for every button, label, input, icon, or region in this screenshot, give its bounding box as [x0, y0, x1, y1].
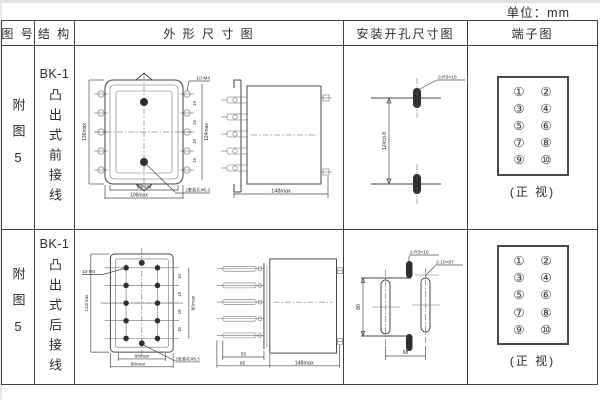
dim-124max: 124max: [204, 122, 210, 140]
dim-148max: 148max: [294, 360, 313, 366]
row2-install-drawing: 80 68 2-R3×10 2-10×87: [345, 242, 467, 372]
row2-outline-side-view: 55 65 148max: [211, 242, 343, 372]
dim-pitch-4: 19: [177, 327, 182, 332]
side-terminals: [221, 97, 247, 171]
hole-label: 2安装孔Φ5.3: [175, 355, 200, 362]
terminal-6: ⑥: [540, 287, 551, 302]
dim-136max: 136max: [82, 122, 88, 140]
dim-pitch-1: 19: [192, 100, 197, 105]
terminal-caption: (正 视): [510, 352, 555, 369]
row2-outline-cell: 112max 10-M4 19 19 19 19 80max 68max 88m…: [75, 230, 344, 384]
dim-80max: 80max: [191, 295, 197, 310]
terminal-1: ①: [513, 253, 524, 268]
mounting-studs: [321, 95, 332, 175]
row2-outline-front-view: 112max 10-M4 19 19 19 19 80max 68max 88m…: [81, 243, 201, 371]
terminal-5: ⑤: [513, 287, 524, 302]
header-terminal: 端子图: [468, 21, 597, 46]
header-outline: 外 形 尺 寸 图: [75, 21, 344, 46]
structure-text: 凸出式后接线: [48, 258, 61, 378]
terminal-6: ⑥: [540, 118, 551, 133]
terminal-8: ⑧: [540, 135, 551, 150]
slot-long-label: 2-10×87: [436, 260, 454, 266]
dim-124-0.8: 124±0.8: [382, 131, 388, 149]
figure-no-text: 附图5: [12, 98, 25, 178]
terminal-7: ⑦: [513, 135, 524, 150]
row1-outline-front-view: 136max 124max 19 19 19 19 10-M4 98max 10…: [81, 72, 211, 204]
dim-148max: 148max: [271, 188, 291, 194]
terminal-4: ④: [540, 270, 551, 285]
row2-structure: BK-1 凸出式后接线: [35, 230, 75, 384]
header-install: 安装开孔尺寸图: [344, 21, 468, 46]
terminal-4: ④: [540, 101, 551, 116]
datasheet-page: 单位：mm 图 号 结 构 外 形 尺 寸 图 安装开孔尺寸图 端子图 附图5 …: [0, 0, 600, 400]
dim-pitch-3: 19: [177, 309, 182, 314]
terminal-9: ⑨: [513, 152, 524, 167]
rear-terminal-studs: [217, 266, 264, 338]
terminal-box: ① ② ③ ④ ⑤ ⑥ ⑦ ⑧ ⑨ ⑩: [497, 245, 569, 345]
dim-pitch-2: 19: [192, 119, 197, 124]
model-text: BK-1: [40, 237, 70, 251]
row1-structure: BK-1 凸出式前接线: [35, 46, 75, 230]
dim-98max: 98max: [136, 184, 152, 190]
left-terminals: [94, 90, 108, 172]
dim-55: 55: [240, 352, 246, 358]
slot-small-label: 2-R3×10: [410, 250, 429, 256]
terminal-7: ⑦: [513, 305, 524, 320]
thread-label: 10-M4: [82, 269, 96, 274]
dim-pitch-1: 19: [177, 274, 182, 279]
slot-label: 2-R3×10: [438, 74, 457, 80]
row1-outline-cell: 136max 124max 19 19 19 19 10-M4 98max 10…: [75, 46, 344, 230]
terminal-2: ②: [540, 84, 551, 99]
row1-outline-side-view: 148max: [221, 72, 333, 204]
dim-112max: 112max: [84, 294, 90, 312]
row2-terminal-cell: ① ② ③ ④ ⑤ ⑥ ⑦ ⑧ ⑨ ⑩ (正 视): [468, 230, 597, 384]
dim-88max: 88max: [131, 361, 146, 367]
thread-label: 10-M4: [196, 75, 210, 81]
header-figure-no: 图 号: [2, 21, 35, 46]
dim-68max: 68max: [134, 353, 149, 359]
terminal-8: ⑧: [540, 305, 551, 320]
terminal-2: ②: [540, 253, 551, 268]
terminal-9: ⑨: [513, 322, 524, 337]
hole-label: 2安装孔Φ5.3: [185, 186, 210, 193]
figure-no-text: 附图5: [12, 267, 25, 347]
row1-install-drawing: 124±0.8 2-R3×10: [345, 68, 467, 208]
terminal-3: ③: [513, 101, 524, 116]
row1-install-cell: 124±0.8 2-R3×10: [344, 46, 468, 230]
mounting-studs: [336, 268, 342, 344]
terminal-5: ⑤: [513, 118, 524, 133]
dim-80: 80: [356, 304, 362, 310]
dim-pitch-4: 19: [192, 157, 197, 162]
unit-label: 单位：mm: [507, 2, 570, 21]
dimension-table: 图 号 结 构 外 形 尺 寸 图 安装开孔尺寸图 端子图 附图5 BK-1 凸…: [1, 20, 598, 385]
header-structure: 结 构: [35, 21, 75, 46]
dim-pitch-3: 19: [192, 138, 197, 143]
terminal-box: ① ② ③ ④ ⑤ ⑥ ⑦ ⑧ ⑨ ⑩: [497, 76, 569, 176]
structure-text: 凸出式前接线: [48, 88, 61, 208]
terminal-1: ①: [513, 84, 524, 99]
row1-figure-no: 附图5: [2, 46, 35, 230]
row1-terminal-cell: ① ② ③ ④ ⑤ ⑥ ⑦ ⑧ ⑨ ⑩ (正 视): [468, 46, 597, 230]
row2-install-cell: 80 68 2-R3×10 2-10×87: [344, 230, 468, 384]
terminal-caption: (正 视): [510, 183, 555, 200]
model-text: BK-1: [40, 67, 70, 81]
terminal-3: ③: [513, 270, 524, 285]
row2-figure-no: 附图5: [2, 230, 35, 384]
dim-pitch-2: 19: [177, 291, 182, 296]
dim-106max: 106max: [130, 192, 148, 198]
terminal-10: ⑩: [540, 152, 551, 167]
dim-65: 65: [239, 360, 245, 366]
terminal-10: ⑩: [540, 322, 551, 337]
dim-68: 68: [402, 350, 408, 356]
